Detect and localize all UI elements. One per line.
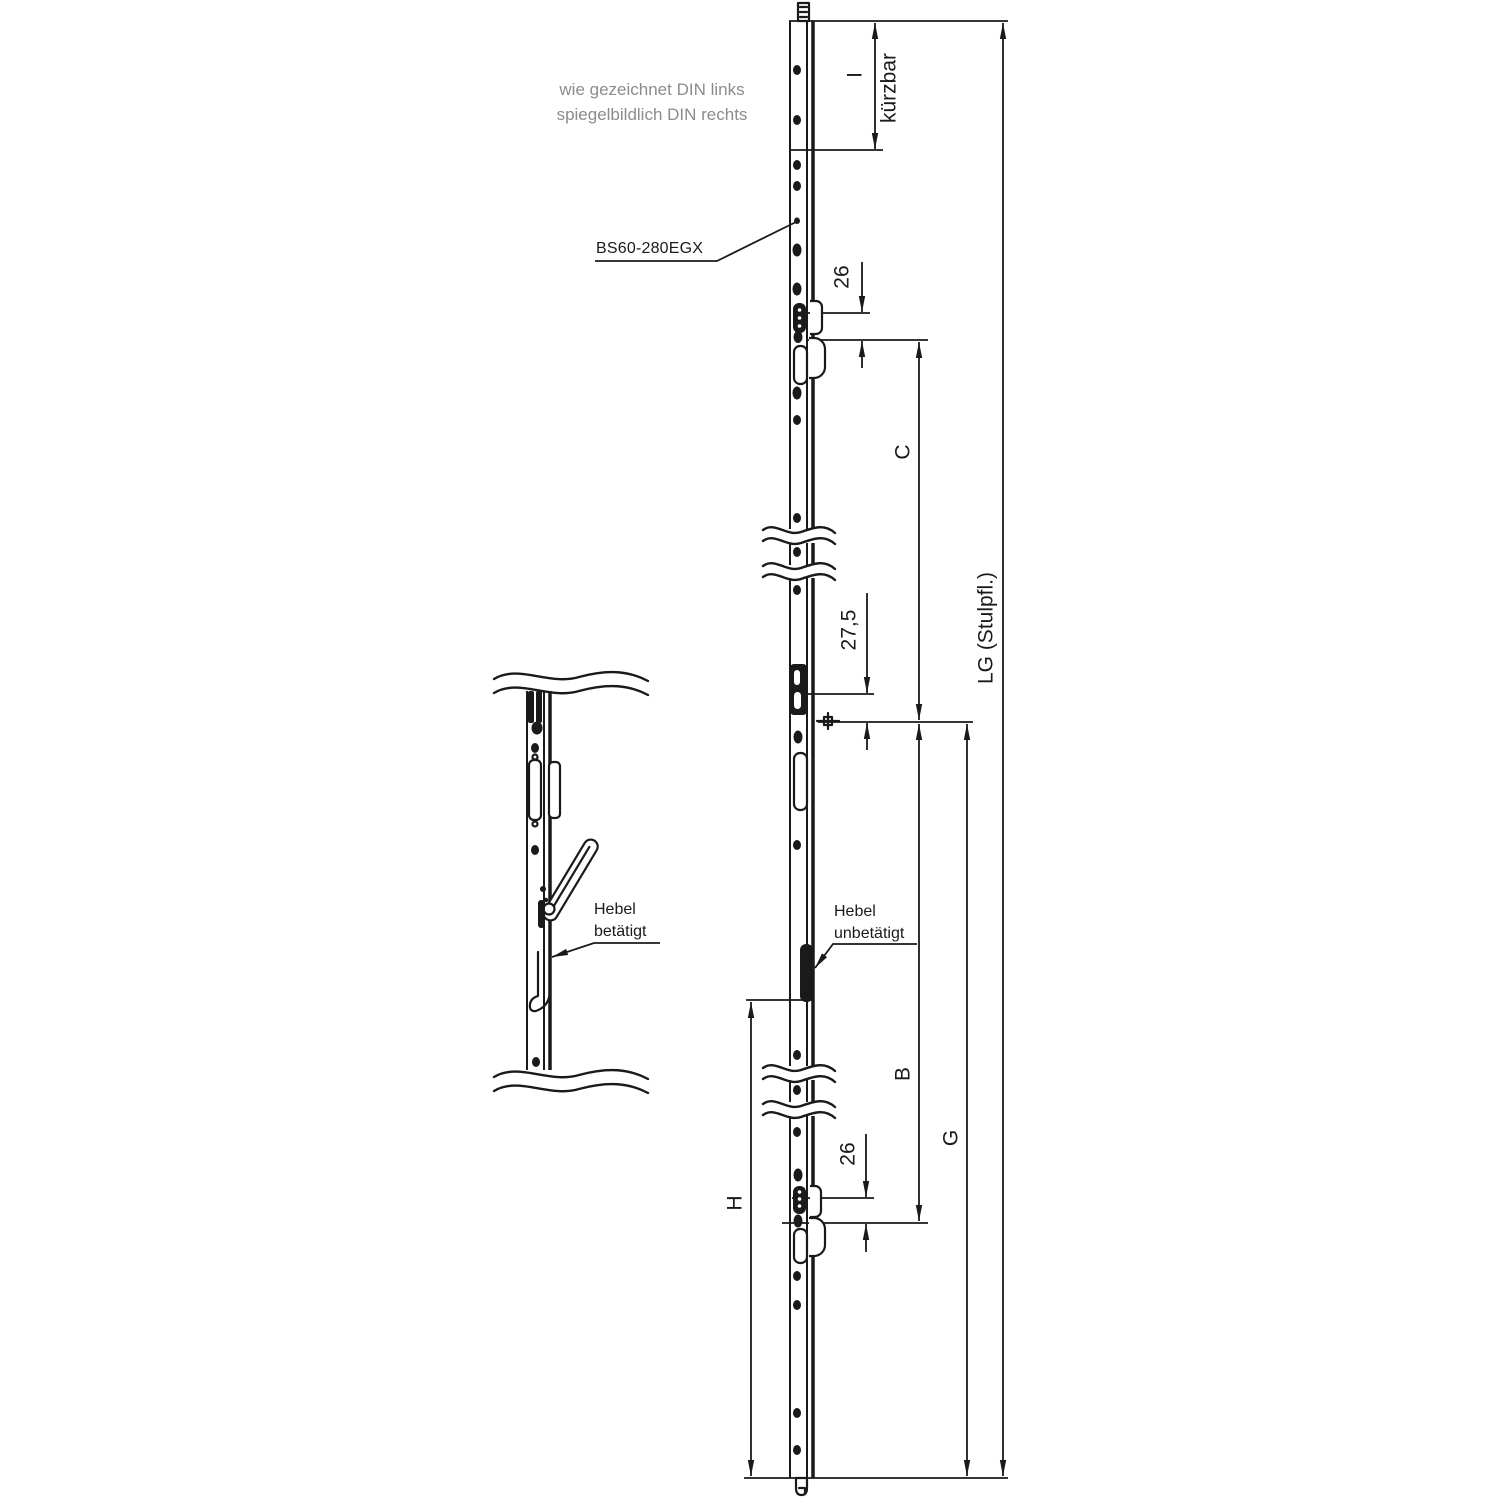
- din-orientation-note: wie gezeichnet DIN links spiegelbildlich…: [557, 80, 748, 124]
- break-wave: [763, 1112, 835, 1118]
- break-wave: [763, 1101, 835, 1107]
- dimension-label-bottom-26: 26: [837, 1142, 860, 1165]
- cam-bracket: [810, 301, 822, 334]
- cam-dot: [798, 1190, 802, 1194]
- callout-lever-actuated: Hebel betätigt: [552, 901, 660, 957]
- break-wave: [763, 1076, 835, 1082]
- dimension-label-H: H: [724, 1195, 747, 1210]
- slot-notch: [533, 822, 538, 827]
- tilt-lever-unactuated: [800, 944, 813, 1002]
- gear-cam-slit: [794, 692, 801, 709]
- break-wave: [494, 1070, 648, 1079]
- screw-hole: [793, 585, 801, 595]
- screw-hole: [793, 1127, 801, 1137]
- part-name-label: BS60-280EGX: [596, 240, 703, 257]
- dimension-label-LG: LG (Stulpfl.): [975, 572, 998, 684]
- dimension-label-C: C: [892, 444, 915, 459]
- adjustment-slot: [794, 753, 807, 810]
- detail-top-pin: [536, 691, 542, 723]
- main-lock-rail: [763, 3, 839, 1495]
- oval-screw-hole: [794, 1169, 803, 1182]
- callout-lever-actuated-line-2: betätigt: [594, 923, 647, 940]
- cam-dot: [798, 1204, 802, 1208]
- callout-lever-unactuated-line-1: Hebel: [834, 903, 876, 920]
- dimension-label-I: I: [844, 72, 867, 78]
- screw-hole: [793, 1085, 801, 1095]
- screw-hole: [793, 181, 801, 191]
- break-wave: [763, 1065, 835, 1071]
- break-wave: [763, 538, 835, 544]
- drawing-page: wie gezeichnet DIN links spiegelbildlich…: [0, 0, 1500, 1500]
- callout-lever-actuated-line-1: Hebel: [594, 901, 636, 918]
- screw-hole: [793, 547, 801, 557]
- oval-screw-hole: [793, 244, 802, 257]
- cam-dot: [798, 316, 802, 320]
- gear-axis-marker: [817, 713, 839, 729]
- gear-axis-cross-icon: [817, 713, 839, 729]
- dimension-label-kuerzbar: kürzbar: [878, 53, 901, 123]
- lever-pivot: [544, 904, 555, 915]
- screw-hole: [793, 1300, 801, 1310]
- callout-lever-actuated-leader: [552, 943, 660, 957]
- leader-target-hole: [795, 218, 800, 223]
- part-name-callout: BS60-280EGX: [595, 218, 800, 261]
- top-connector-pin: [798, 3, 809, 21]
- oval-screw-hole: [794, 1215, 803, 1228]
- note-line-1: wie gezeichnet DIN links: [558, 80, 744, 99]
- lever-arm-inner-line: [551, 847, 589, 910]
- detail-top-pin: [528, 691, 534, 723]
- slot-notch: [533, 755, 538, 760]
- callout-lever-unactuated: Hebel unbetätigt: [815, 903, 917, 968]
- adjustment-slot: [794, 346, 807, 384]
- callout-lever-unactuated-line-2: unbetätigt: [834, 925, 905, 942]
- screw-hole: [793, 1408, 801, 1418]
- dimension-label-G: G: [940, 1130, 963, 1146]
- gear-cam-slit: [794, 670, 800, 685]
- cam-dot: [798, 1197, 802, 1201]
- latch-hook: [530, 944, 550, 1011]
- latch-keeper: [809, 1218, 825, 1256]
- screw-hole: [793, 840, 801, 850]
- screw-hole: [793, 115, 801, 125]
- adjustment-slot: [529, 760, 541, 820]
- cam-bracket: [549, 762, 560, 818]
- dimension-label-B: B: [892, 1067, 915, 1081]
- cam-bracket: [810, 1186, 821, 1217]
- screw-hole: [793, 1445, 801, 1455]
- lever-detail-view: [494, 672, 648, 1093]
- oval-screw-hole: [794, 331, 803, 343]
- break-wave: [763, 574, 835, 580]
- extension-lines: [744, 21, 1008, 1478]
- screw-hole: [793, 65, 801, 75]
- adjustment-slot: [794, 1229, 807, 1263]
- note-line-2: spiegelbildlich DIN rechts: [557, 105, 748, 124]
- break-wave: [494, 1084, 648, 1093]
- dimension-lines: [751, 23, 1003, 1476]
- cam-dot: [798, 308, 802, 312]
- screw-hole: [793, 1050, 801, 1060]
- lever-lower-arm: [538, 900, 545, 928]
- break-wave: [763, 563, 835, 569]
- dimension-label-top-26: 26: [831, 265, 854, 288]
- screw-hole: [793, 1271, 801, 1281]
- break-wave: [763, 527, 835, 533]
- screw-hole: [532, 1057, 540, 1067]
- break-wave: [494, 672, 648, 681]
- screw-hole: [793, 160, 801, 170]
- screw-hole: [531, 743, 539, 753]
- screw-hole: [793, 513, 801, 523]
- oval-screw-hole: [794, 731, 803, 744]
- rail-break-lines: [763, 527, 835, 1118]
- detail-cam-head: [532, 722, 543, 735]
- callout-lever-unactuated-leader: [815, 944, 917, 968]
- dimension-label-27-5: 27,5: [838, 610, 861, 651]
- cam-dot: [798, 324, 802, 328]
- screw-hole: [793, 415, 801, 425]
- pivot-rivet: [540, 886, 546, 892]
- oval-screw-hole: [793, 387, 802, 400]
- dimension-labels: I kürzbar 26 C 27,5 LG (Stulpfl.) B G 26…: [724, 53, 998, 1211]
- oval-screw-hole: [793, 283, 802, 296]
- screw-hole: [531, 845, 539, 855]
- latch-keeper: [809, 338, 825, 378]
- technical-drawing-canvas: wie gezeichnet DIN links spiegelbildlich…: [0, 0, 1500, 1500]
- bottom-connector-pin: [796, 1478, 807, 1495]
- break-wave: [494, 686, 648, 695]
